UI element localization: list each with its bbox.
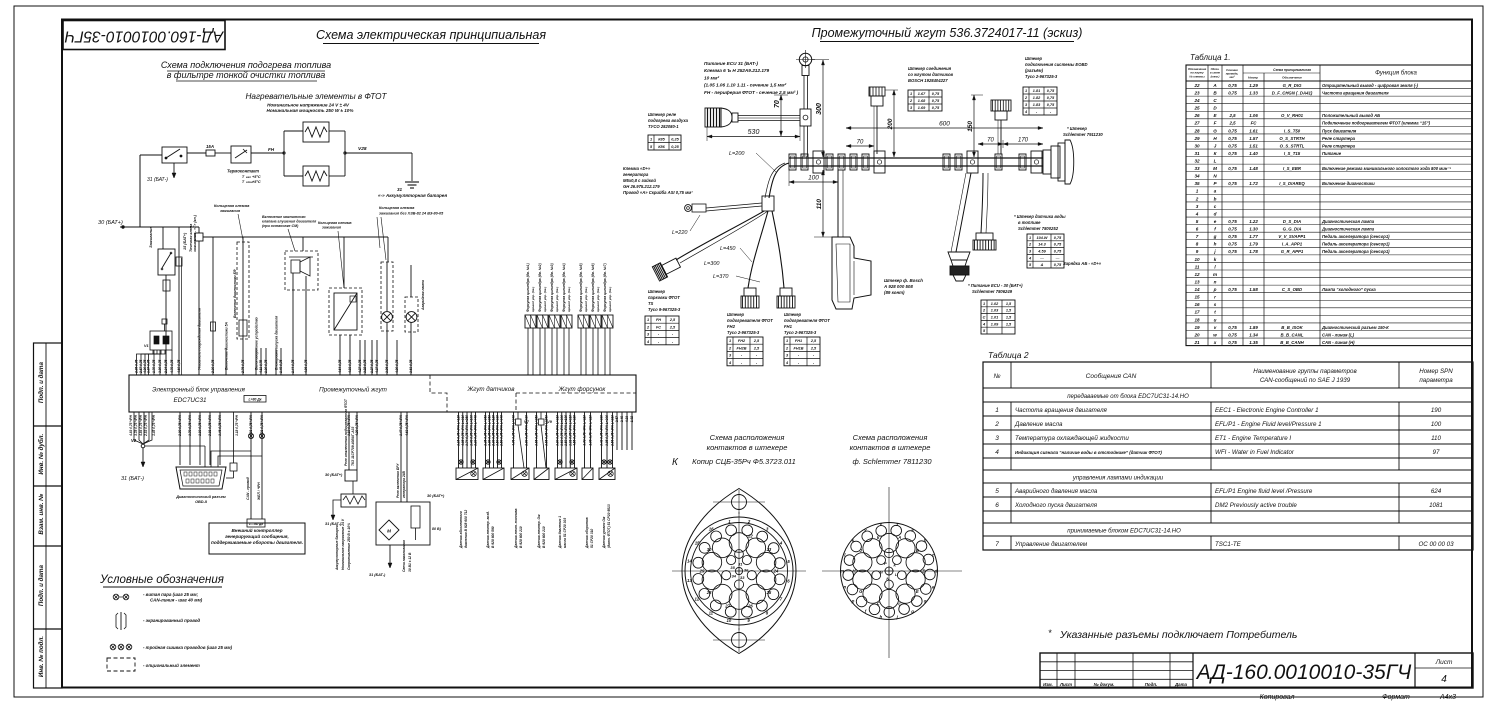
svg-text:3.42 0,75 ЧРН L=390: 3.42 0,75 ЧРН L=390 [600,415,604,446]
svg-text:Реле отключения подогревателя: Реле отключения подогревателя ФТОТ [344,398,348,466]
svg-text:зажигания без ХЗВ-82 24 ВЗ-80-: зажигания без ХЗВ-82 24 ВЗ-80-05 [379,212,444,216]
svg-text:САN-сообщений по SAE J 193: САN-сообщений по SAE J 1939 [1260,377,1351,384]
svg-text:G_G_DIA: G_G_DIA [1283,227,1302,232]
svg-text:4.27 0,75: 4.27 0,75 [358,359,362,374]
svg-text:29: 29 [699,569,705,574]
svg-text:Клемма «D+»: Клемма «D+» [623,166,651,171]
svg-text:№ клеммы: № клеммы [1189,75,1205,79]
svg-text:А 928 000 508: А 928 000 508 [883,284,913,289]
svg-text:Формат: Формат [1382,694,1410,701]
svg-text:Термоконтакт: Термоконтакт [227,169,259,174]
svg-text:34: 34 [1194,174,1200,179]
svg-text:EFL/P1 Engine fluid level: EFL/P1 Engine fluid level /Pressure [1215,488,1313,495]
svg-text:№ докум.: № докум. [1094,682,1115,687]
svg-text:1: 1 [1196,189,1199,194]
svg-text:провод упр. (дв.): провод упр. (дв.) [555,287,559,312]
svg-text:0,75: 0,75 [1047,89,1055,93]
svg-text:1.33: 1.33 [1249,90,1258,95]
svg-text:Блокировка запуска двигателя: Блокировка запуска двигателя [275,316,279,370]
svg-text:31: 31 [738,561,742,566]
svg-text:Форсунка цилиндра (дв. №1): Форсунка цилиндра (дв. №1) [526,262,530,312]
svg-text:* Штекер: * Штекер [1067,126,1087,131]
svg-text:0,75: 0,75 [1054,263,1062,267]
svg-text:+5°С: +5°С [252,175,261,179]
svg-text:11: 11 [709,610,714,615]
svg-text:2,5: 2,5 [810,346,817,350]
svg-text:190: 190 [1431,407,1442,414]
svg-text:Лист: Лист [1435,659,1453,666]
svg-text:L=450: L=450 [720,246,736,252]
svg-text:А4х3: А4х3 [1439,694,1456,701]
svg-text:10: 10 [727,618,732,623]
svg-text:Схема электрическая принципи: Схема электрическая принципиальная [316,28,546,42]
svg-text:Копировал: Копировал [1260,694,1295,701]
svg-text:Отрицательный вывод - цифров: Отрицательный вывод - цифровая земля (-) [1322,83,1418,88]
svg-text:Штекер: Штекер [648,289,666,294]
svg-text:1: 1 [995,407,999,414]
svg-text:b: b [924,538,927,543]
svg-text:3.48: 3.48 [620,416,624,422]
svg-text:TSC1-ТЕ: TSC1-ТЕ [1215,541,1242,548]
svg-text:1.67: 1.67 [918,92,926,96]
svg-text:Питание: Питание [1322,151,1342,156]
svg-text:16: 16 [1194,302,1200,307]
svg-text:0,75: 0,75 [1054,243,1062,247]
svg-text:O_S_STRTH: O_S_STRTH [1279,136,1305,141]
svg-text:D_F_CHGN (_DA41): D_F_CHGN (_DA41) [1272,90,1313,95]
svg-text:е: е [1214,219,1217,224]
svg-text:L=300: L=300 [704,261,720,267]
svg-text:L=200: L=200 [729,151,745,157]
svg-text:0,25: 0,25 [671,145,679,149]
svg-text:s: s [1214,302,1217,307]
svg-text:Промежуточный жгут 536.37240: Промежуточный жгут 536.3724017-11 (эскиз… [812,26,1083,40]
svg-text:4.60 0,75: 4.60 0,75 [177,359,181,374]
svg-text:15: 15 [1194,295,1200,300]
svg-text:М5х0,8 с гайкой: М5х0,8 с гайкой [623,178,656,183]
svg-text:29: 29 [1193,136,1200,141]
svg-text:0,75: 0,75 [1047,103,1055,107]
svg-text:Индикация сигнала “наличие вод: Индикация сигнала “наличие воды в отстой… [1015,450,1162,455]
svg-text:0,75: 0,75 [1228,90,1237,95]
svg-text:№: № [993,373,1000,380]
svg-text:16: 16 [709,526,714,531]
svg-text:14: 14 [687,558,692,563]
svg-text:g: g [910,609,914,614]
svg-text:3.63 0,75: 3.63 0,75 [409,359,413,373]
svg-text:Включение магнитного: Включение магнитного [262,215,306,219]
svg-text:15 (БАТ+): 15 (БАТ+) [183,232,187,250]
svg-text:Схема расположения: Схема расположения [710,433,785,442]
svg-text:15А: 15А [206,144,214,149]
svg-text:А: А [897,535,901,540]
svg-text:30: 30 [1194,143,1200,148]
svg-text:* Штекер датчика воды: * Штекер датчика воды [1014,214,1066,219]
svg-text:провод упр. (дв.): провод упр. (дв.) [567,287,571,312]
svg-text:b: b [1214,196,1217,201]
svg-text:Наименование группы параметр: Наименование группы параметров [1253,368,1357,375]
svg-text:Частота вращения двигателя: Частота вращения двигателя [1015,407,1108,414]
svg-text:2.56 0,75 ЧРН L=210: 2.56 0,75 ЧРН L=210 [611,415,615,447]
svg-text:Номинальное напряжение 24 V ±: Номинальное напряжение 24 V ± 4V [267,103,350,108]
svg-text:Датчик темпер. Ож: Датчик темпер. Ож [537,514,541,549]
svg-text:7: 7 [1196,234,1199,239]
svg-text:Включение диагностики БФ: Включение диагностики БФ [233,269,237,318]
svg-text:FH - периферия ФТОТ - сече: FH - периферия ФТОТ - сечение 2,5 мм² ) [704,89,799,95]
svg-text:Датчик давления 1: Датчик давления 1 [558,516,562,549]
svg-text:5: 5 [1196,219,1199,224]
svg-text:(89 конт): (89 конт) [884,290,905,295]
svg-text:G_R_APP1: G_R_APP1 [1281,249,1304,254]
svg-text:1.82: 1.82 [1033,96,1041,100]
svg-text:w: w [1213,332,1217,337]
svg-text:зажигания: зажигания [322,226,342,230]
svg-text:Подключение подогревателем ФТО: Подключение подогревателем ФТОТ (клемма … [1322,121,1431,126]
svg-text:«-» Аккумуляторная батарея: «-» Аккумуляторная батарея [378,192,447,198]
svg-text:21: 21 [1193,340,1200,345]
svg-text:13: 13 [687,578,692,583]
svg-text:1: 1 [1025,89,1027,93]
svg-text:3: 3 [995,435,999,442]
svg-text:Номинальная мощность 250 W ± 1: Номинальная мощность 250 W ± 10% [267,108,354,113]
svg-text:3: 3 [1196,204,1199,209]
svg-text:р: р [1213,287,1217,292]
svg-text:0,75: 0,75 [1228,143,1237,148]
svg-text:300: 300 [816,103,823,115]
svg-text:D: D [922,568,925,573]
svg-text:n: n [843,585,846,590]
svg-text:Провод «А» Скрийба ASI 0,75 мм: Провод «А» Скрийба ASI 0,75 мм² [623,190,693,195]
svg-text:DM2 Previously active troub: DM2 Previously active trouble [1215,502,1297,509]
svg-text:V28: V28 [358,146,367,152]
svg-text:FН1: FН1 [784,324,793,329]
svg-text:35: 35 [1194,181,1200,186]
svg-text:ТКЗ 11СР709-40ВUГ-А33: ТКЗ 11СР709-40ВUГ-А33 [351,427,355,466]
svg-text:зажигания: зажигания [220,209,241,213]
svg-text:—: — [1039,256,1044,260]
svg-text:B_B_CANL: B_B_CANL [1281,332,1304,337]
svg-text:1: 1 [729,339,731,343]
svg-text:4.37 0,75: 4.37 0,75 [375,359,379,374]
svg-text:L=220: L=220 [672,230,688,236]
svg-text:0,75: 0,75 [1228,227,1237,232]
svg-text:Форсунка цилиндра (дв. №4): Форсунка цилиндра (дв. №4) [562,262,566,312]
svg-text:4.55 0,75 ЧРН L=320: 4.55 0,75 ЧРН L=320 [573,415,577,447]
svg-text:B_B_CANH: B_B_CANH [1280,340,1304,345]
svg-text:4.64 0,75: 4.64 0,75 [338,359,342,374]
svg-text:Тусо 9-967325-3: Тусо 9-967325-3 [648,307,681,312]
svg-text:К: К [877,535,880,540]
svg-text:Валоповоротное устройство: Валоповоротное устройство [255,317,259,370]
svg-text:2,5: 2,5 [669,318,676,322]
svg-text:*: * [1048,628,1052,638]
svg-text:200: 200 [887,118,894,130]
svg-text:CAN - линия (L): CAN - линия (L) [1322,332,1355,337]
svg-text:Положительный вывод АБ: Положительный вывод АБ [1322,113,1380,118]
svg-text:n: n [1214,279,1217,284]
svg-text:0,75: 0,75 [932,92,940,96]
svg-text:17: 17 [1194,310,1200,315]
svg-text:Кольцевая клемма: Кольцевая клемма [379,206,414,210]
svg-text:Указанные разъемы подключает: Указанные разъемы подключает Потребитель [1059,629,1297,641]
svg-text:- тройная сшивка проводов (ша: - тройная сшивка проводов (шаг 25 мм) [143,645,233,650]
svg-text:1: 1 [650,137,652,141]
svg-text:31 (БАТ-): 31 (БАТ-) [325,522,342,526]
svg-text:М: М [387,529,391,534]
svg-text:3.78 0,75 ЧРН: 3.78 0,75 ЧРН [134,414,138,436]
svg-text:0,75: 0,75 [1228,181,1237,186]
svg-text:8: 8 [1196,242,1199,247]
svg-text:Схема расположения: Схема расположения [853,433,928,442]
svg-text:Включение диагностики: Включение диагностики [1322,181,1375,186]
svg-text:подогревателя ФТОТ: подогревателя ФТОТ [784,318,830,323]
svg-text:1.18 0,75 ЧРН: 1.18 0,75 ЧРН [235,414,239,436]
svg-text:Инв. № подл.: Инв. № подл. [38,636,45,677]
svg-text:Зажигание: Зажигание [148,226,153,248]
svg-text:4.59: 4.59 [1037,249,1046,253]
svg-text:4.84 0,75 ЧРН: 4.84 0,75 ЧРН [139,414,143,437]
svg-text:Включение режима минимального: Включение режима минимального холостого … [1322,166,1452,171]
svg-text:Кольцевая клемма: Кольцевая клемма [318,221,351,225]
svg-text:1.70 0,75: 1.70 0,75 [152,359,156,373]
svg-text:провод упр. (дв.): провод упр. (дв.) [608,287,612,312]
svg-text:клапана глушения двигателя: клапана глушения двигателя [262,220,317,224]
svg-text:70: 70 [987,138,994,144]
svg-text:m: m [1213,272,1217,277]
svg-text:ТS: ТS [648,301,654,306]
svg-text:Сообщения САN: Сообщения САN [1086,372,1137,380]
svg-text:(при остановке СМ): (при остановке СМ) [262,224,299,228]
svg-text:вкл: вкл [246,175,251,179]
svg-text:2.34 0,75: 2.34 0,75 [164,359,168,374]
svg-text:1.22: 1.22 [1249,219,1258,224]
svg-text:1.09: 1.09 [991,322,999,326]
svg-text:10: 10 [1194,257,1200,262]
svg-text:1.30 0,75: 1.30 0,75 [264,359,268,373]
svg-text:L=370: L=370 [713,274,729,280]
svg-text:1,5: 1,5 [1006,315,1012,319]
svg-text:Лист: Лист [1059,682,1072,687]
svg-text:К86: К86 [658,145,665,149]
svg-text:1,5: 1,5 [1006,309,1012,313]
svg-text:Зарядка АБ - «D+»: Зарядка АБ - «D+» [1063,261,1102,266]
svg-text:Schlemmer 7911230: Schlemmer 7911230 [1063,132,1103,137]
svg-text:OBD-II: OBD-II [195,500,208,504]
svg-text:3.80 0,75: 3.80 0,75 [158,359,162,373]
svg-text:14: 14 [1194,287,1200,292]
svg-text:Штекер соединения: Штекер соединения [908,66,952,71]
svg-text:ЖЕЛ / ЧРН: ЖЕЛ / ЧРН [257,482,261,501]
svg-text:Штекер реле: Штекер реле [648,112,677,117]
svg-text:Реле включения БРУ: Реле включения БРУ [396,463,400,498]
svg-text:20: 20 [1193,332,1200,337]
svg-text:2,5: 2,5 [810,339,817,343]
svg-text:FH2: FH2 [727,324,736,329]
svg-text:1.27 0,75: 1.27 0,75 [370,359,374,373]
svg-text:4.83 0,75: 4.83 0,75 [348,359,352,374]
svg-text:0,75: 0,75 [1228,325,1237,330]
svg-text:51 СР20 310: 51 СР20 310 [590,529,594,548]
svg-text:O_V_RH01: O_V_RH01 [1281,113,1304,118]
svg-text:Жгут датчиков: Жгут датчиков [467,386,516,393]
svg-text:1.01: 1.01 [991,315,998,319]
svg-text:0,75: 0,75 [1054,249,1062,253]
svg-text:Педаль акселератора (сенсор1): Педаль акселератора (сенсор1) [1322,234,1390,239]
svg-text:L=80 Дк: L=80 Дк [249,398,262,402]
svg-text:провод упр. (дв.): провод упр. (дв.) [584,287,588,312]
svg-text:0,75: 0,75 [1228,287,1237,292]
svg-text:32: 32 [1194,158,1200,163]
svg-text:12: 12 [1194,272,1200,277]
svg-text:Обозн.: Обозн. [1211,67,1220,71]
svg-text:4.23: 4.23 [625,416,629,423]
svg-text:Штекер: Штекер [784,312,802,317]
svg-text:2: 2 [1195,196,1199,201]
svg-text:23: 23 [766,547,772,552]
svg-text:Форсунка цилиндра (дв. №2): Форсунка цилиндра (дв. №2) [538,262,542,312]
svg-text:Форсунка цилиндра (дв. №5): Форсунка цилиндра (дв. №5) [579,262,583,312]
svg-text:0,75: 0,75 [1228,340,1237,345]
svg-text:принимаемые блоком EDC7UC31-: принимаемые блоком EDC7UC31-14.НО [1067,528,1181,534]
svg-text:Форсунка цилиндра (дв. №6): Форсунка цилиндра (дв. №6) [591,262,595,312]
svg-text:(1.05 1.06 1.10 1.11 - се: (1.05 1.06 1.10 1.11 - сечение 1,5 мм² [704,83,787,88]
svg-text:0,75: 0,75 [1228,136,1237,141]
svg-text:2.58 0,75 ЧРН L=340: 2.58 0,75 ЧРН L=340 [500,415,504,447]
svg-text:L: L [1214,158,1217,163]
svg-text:Педаль акселератора (сенсор1): Педаль акселератора (сенсор1) [1322,242,1390,247]
svg-text:26: 26 [1193,113,1200,118]
svg-text:1: 1 [647,318,649,322]
svg-text:0,75: 0,75 [1228,151,1237,156]
svg-text:F: F [1214,121,1217,126]
svg-text:V2: V2 [131,438,137,443]
svg-text:V7: V7 [524,419,530,424]
svg-text:управления лампами индикации: управления лампами индикации [1072,475,1164,481]
svg-text:FH2В: FH2В [737,346,747,350]
svg-text:1.57: 1.57 [1249,136,1258,141]
svg-text:генератора 24В: генератора 24В [402,470,406,498]
svg-text:Инв. № дубл.: Инв. № дубл. [38,433,45,474]
svg-text:Подп.: Подп. [1145,682,1157,687]
svg-text:Таблица 2: Таблица 2 [988,350,1029,360]
svg-text:CAN - провод: CAN - провод [246,477,250,500]
svg-text:0,75: 0,75 [1228,234,1237,239]
svg-text:4: 4 [995,449,999,456]
svg-text:Аккумуляторные батареи: Аккумуляторные батареи [335,525,339,571]
svg-text:4.79 0,75: 4.79 0,75 [170,359,174,374]
svg-text:параметра: параметра [1419,377,1453,384]
svg-text:провод упр. (дв.): провод упр. (дв.) [531,287,535,312]
svg-text:0,25: 0,25 [671,137,679,141]
svg-text:CAN-линия - шаг 40 мм): CAN-линия - шаг 40 мм) [150,598,203,603]
svg-text:0,75: 0,75 [932,99,940,103]
svg-text:1: 1 [786,339,788,343]
svg-text:Условные обозначения: Условные обозначения [99,574,224,586]
svg-text:Штекер: Штекер [1025,56,1043,61]
svg-text:I_S_T15: I_S_T15 [1284,151,1301,156]
svg-text:х: х [1213,340,1217,345]
svg-text:в фильтре тонкой очистки т: в фильтре тонкой очистки топлива [167,70,326,80]
svg-text:3.85 0,75 ЧРН L=300: 3.85 0,75 ЧРН L=300 [605,415,609,446]
svg-text:Взам. инв. №: Взам. инв. № [38,493,45,535]
svg-text:9: 9 [1196,249,1199,254]
svg-text:Обозначение: Обозначение [1282,76,1302,80]
svg-text:1.72: 1.72 [1249,181,1258,186]
svg-text:WFI - Water in Fuel Indic: WFI - Water in Fuel Indicator [1215,449,1295,456]
svg-text:Форсунка цилиндра (дв. №3): Форсунка цилиндра (дв. №3) [550,262,554,312]
svg-text:1.48: 1.48 [1249,166,1258,171]
svg-text:d: d [1214,211,1217,216]
svg-text:12: 12 [695,596,700,601]
svg-text:30: 30 [707,547,712,552]
svg-text:70: 70 [857,140,864,146]
svg-text:5: 5 [995,488,999,495]
svg-text:q: q [924,599,927,604]
svg-text:Датчик темп. топлива: Датчик темп. топлива [514,508,518,549]
svg-text:Клемма 6 Ъ Н 252А9.212.179: Клемма 6 Ъ Н 252А9.212.179 [704,68,770,73]
svg-text:Форсунка цилиндра (дв. №7): Форсунка цилиндра (дв. №7) [603,262,607,312]
svg-text:Сопротивление 250 В ± 10%: Сопротивление 250 В ± 10% [347,523,351,570]
svg-text:2.53 0,75 ЧРН: 2.53 0,75 ЧРН [144,414,148,437]
svg-text:h: h [879,615,882,620]
svg-text:D_S_DIA: D_S_DIA [1283,219,1301,224]
svg-text:масла 51 СР20 303: масла 51 СР20 303 [563,518,567,548]
svg-text:4: 4 [1441,674,1447,685]
svg-text:Внешний контроллер: Внешний контроллер [231,527,282,533]
svg-text:31: 31 [1194,151,1200,156]
svg-text:0,75: 0,75 [1228,332,1237,337]
svg-text:u: u [1214,317,1217,322]
svg-text:0,75: 0,75 [1228,249,1237,254]
svg-text:Лампа “холодного” пуска: Лампа “холодного” пуска [1321,287,1376,292]
svg-text:А: А [1040,263,1044,267]
svg-text:1081: 1081 [1429,502,1443,509]
svg-text:80 В): 80 В) [432,527,442,531]
svg-text:1,5: 1,5 [1006,322,1012,326]
svg-text:Пуск двигателя: Пуск двигателя [1322,128,1357,133]
svg-text:Диагностическая лампа: Диагностическая лампа [1321,219,1375,224]
svg-text:O_S_STRTL: O_S_STRTL [1280,143,1305,148]
svg-text:1.77: 1.77 [1249,234,1258,239]
svg-text:парковки ФТОТ: парковки ФТОТ [648,295,680,300]
svg-text:4.83 0,75 ЧРН: 4.83 0,75 ЧРН [129,414,133,437]
svg-text:19: 19 [1194,325,1200,330]
svg-text:C_S_OBD: C_S_OBD [1282,287,1302,292]
svg-text:1.96 0,75 ЧРН L=110: 1.96 0,75 ЧРН L=110 [589,415,593,446]
svg-text:FH2: FH2 [738,339,746,343]
svg-text:2,5: 2,5 [753,346,760,350]
svg-text:контактов в штекере: контактов в штекере [850,443,931,452]
svg-text:30 (БАТ+): 30 (БАТ+) [325,473,343,477]
svg-text:С: С [983,315,986,319]
svg-text:1.69: 1.69 [918,106,926,110]
svg-text:мм²: мм² [1229,75,1234,79]
svg-text:Датчик темпер. возд.: Датчик темпер. возд. [486,511,490,549]
svg-text:(датч. ФТОТ) 51 СР20 9513: (датч. ФТОТ) 51 СР20 9513 [607,504,611,548]
svg-text:B_B_ISOK: B_B_ISOK [1281,325,1303,330]
svg-text:Номер: Номер [1248,76,1258,80]
svg-text:0,75: 0,75 [1054,236,1062,240]
svg-text:27: 27 [1193,121,1200,126]
svg-text:30 (БАТ+): 30 (БАТ+) [427,494,445,498]
svg-text:3.72 0,75 ЧРН L=110: 3.72 0,75 ЧРН L=110 [583,415,587,446]
svg-text:АД-160.0010010-35ГЧ: АД-160.0010010-35ГЧ [64,28,224,45]
svg-text:Датчик абсолютного: Датчик абсолютного [459,511,463,549]
svg-text:m: m [840,568,844,573]
svg-text:FC: FC [656,325,661,329]
svg-text:Электронный блок управления: Электронный блок управления [152,386,245,394]
svg-text:давления В 928 600 712: давления В 928 600 712 [464,510,468,548]
